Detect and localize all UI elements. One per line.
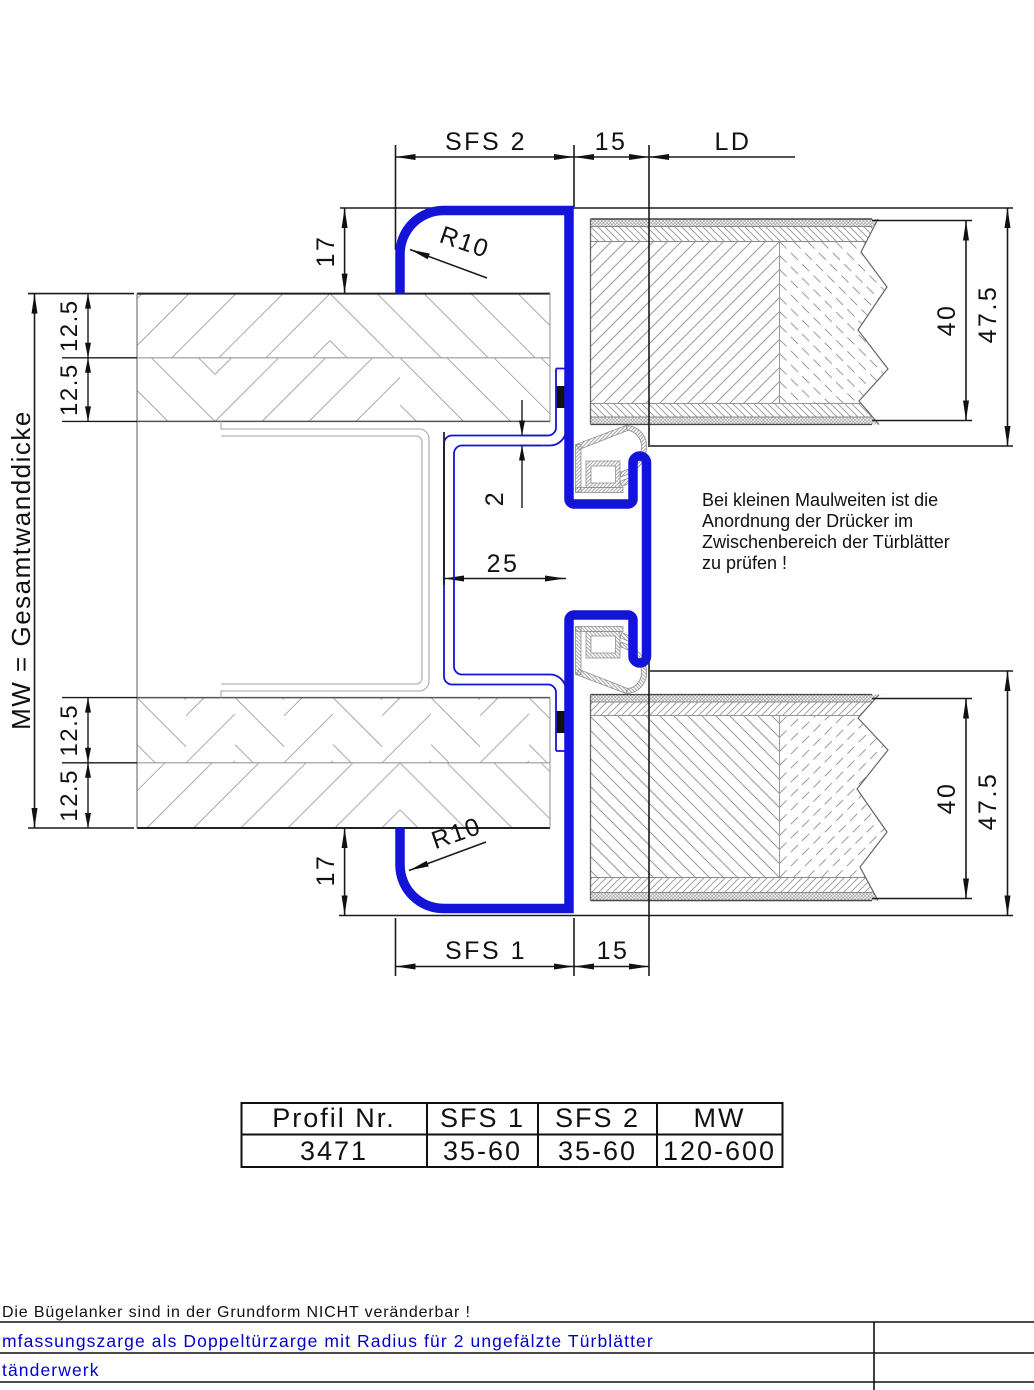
- svg-text:LD: LD: [715, 128, 752, 156]
- svg-text:mfassungszarge als Doppeltürza: mfassungszarge als Doppeltürzarge mit Ra…: [2, 1331, 654, 1351]
- svg-text:SFS 1: SFS 1: [440, 1103, 525, 1133]
- svg-text:35-60: 35-60: [443, 1136, 522, 1166]
- svg-text:Bei kleinen Maulweiten ist die: Bei kleinen Maulweiten ist die: [702, 490, 938, 510]
- svg-text:Zwischenbereich der Türblätter: Zwischenbereich der Türblätter: [702, 532, 950, 552]
- svg-text:SFS 2: SFS 2: [555, 1103, 640, 1133]
- svg-text:35-60: 35-60: [558, 1136, 637, 1166]
- svg-text:120-600: 120-600: [663, 1136, 776, 1166]
- svg-text:12.5: 12.5: [56, 769, 83, 822]
- svg-text:2: 2: [481, 490, 509, 506]
- svg-text:MW = Gesamtwanddicke: MW = Gesamtwanddicke: [6, 410, 36, 730]
- svg-text:12.5: 12.5: [56, 704, 83, 757]
- svg-text:Die Bügelanker sind in der Gru: Die Bügelanker sind in der Grundform NIC…: [2, 1304, 471, 1321]
- svg-text:17: 17: [312, 854, 340, 887]
- svg-text:40: 40: [933, 304, 961, 337]
- svg-text:SFS 2: SFS 2: [445, 128, 527, 156]
- svg-text:3471: 3471: [300, 1136, 368, 1166]
- svg-text:12.5: 12.5: [56, 299, 83, 352]
- svg-text:15: 15: [595, 128, 628, 156]
- svg-text:SFS 1: SFS 1: [445, 937, 527, 965]
- svg-text:12.5: 12.5: [56, 363, 83, 416]
- svg-text:47.5: 47.5: [974, 285, 1002, 344]
- svg-text:zu prüfen !: zu prüfen !: [702, 553, 787, 573]
- svg-text:40: 40: [933, 782, 961, 815]
- svg-text:tänderwerk: tänderwerk: [2, 1360, 100, 1380]
- svg-text:Profil Nr.: Profil Nr.: [272, 1103, 396, 1133]
- svg-text:Anordnung der Drücker im: Anordnung der Drücker im: [702, 511, 913, 531]
- svg-text:15: 15: [597, 937, 630, 965]
- svg-text:MW: MW: [694, 1103, 746, 1133]
- svg-text:25: 25: [487, 550, 520, 578]
- svg-text:17: 17: [312, 235, 340, 268]
- svg-text:47.5: 47.5: [974, 772, 1002, 831]
